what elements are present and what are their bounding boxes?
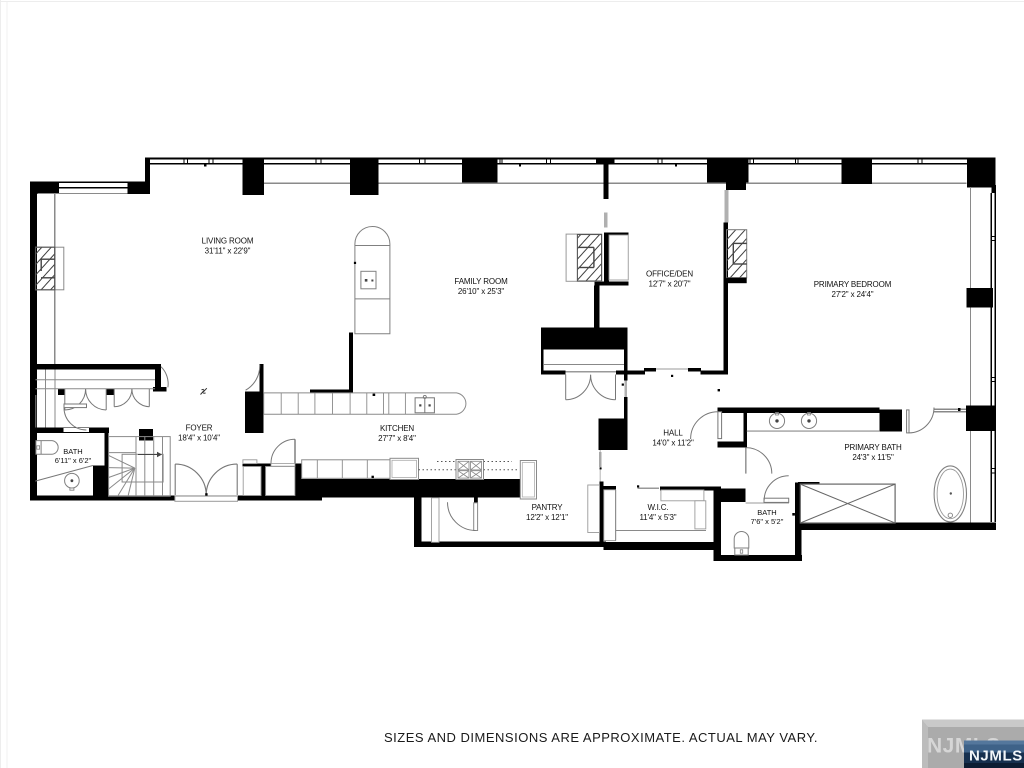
svg-text:6'11" x 6'2": 6'11" x 6'2" (55, 456, 92, 465)
svg-text:11'4" x 5'3": 11'4" x 5'3" (639, 513, 676, 522)
svg-text:24'3" x 11'5": 24'3" x 11'5" (852, 453, 894, 462)
svg-text:PRIMARY BATH: PRIMARY BATH (844, 443, 902, 452)
svg-text:26'10" x 25'3": 26'10" x 25'3" (458, 287, 505, 296)
svg-text:14'0" x 11'2": 14'0" x 11'2" (652, 439, 694, 448)
svg-text:7'6" x 5'2": 7'6" x 5'2" (751, 517, 784, 526)
svg-text:W.I.C.: W.I.C. (648, 503, 669, 512)
svg-text:BATH: BATH (63, 447, 82, 456)
svg-text:BATH: BATH (757, 508, 776, 517)
svg-text:PRIMARY BEDROOM: PRIMARY BEDROOM (814, 280, 892, 289)
svg-text:SIZES AND DIMENSIONS ARE APPRO: SIZES AND DIMENSIONS ARE APPROXIMATE. AC… (384, 730, 818, 745)
svg-text:NJMLS: NJMLS (969, 748, 1023, 765)
svg-text:FOYER: FOYER (186, 424, 213, 433)
svg-text:OFFICE/DEN: OFFICE/DEN (646, 270, 693, 279)
svg-text:12'2" x 12'1": 12'2" x 12'1" (526, 513, 568, 522)
svg-text:LIVING ROOM: LIVING ROOM (202, 237, 254, 246)
svg-text:PANTRY: PANTRY (532, 503, 564, 512)
svg-text:31'11" x 22'9": 31'11" x 22'9" (205, 247, 251, 256)
svg-text:HALL: HALL (663, 429, 683, 438)
svg-text:12'7" x 20'7": 12'7" x 20'7" (649, 280, 691, 289)
svg-text:18'4" x 10'4": 18'4" x 10'4" (178, 434, 220, 443)
svg-text:27'7" x 8'4": 27'7" x 8'4" (378, 434, 416, 443)
svg-text:FAMILY ROOM: FAMILY ROOM (454, 277, 508, 286)
svg-text:27'2" x 24'4": 27'2" x 24'4" (832, 290, 874, 299)
svg-text:KITCHEN: KITCHEN (380, 424, 414, 433)
